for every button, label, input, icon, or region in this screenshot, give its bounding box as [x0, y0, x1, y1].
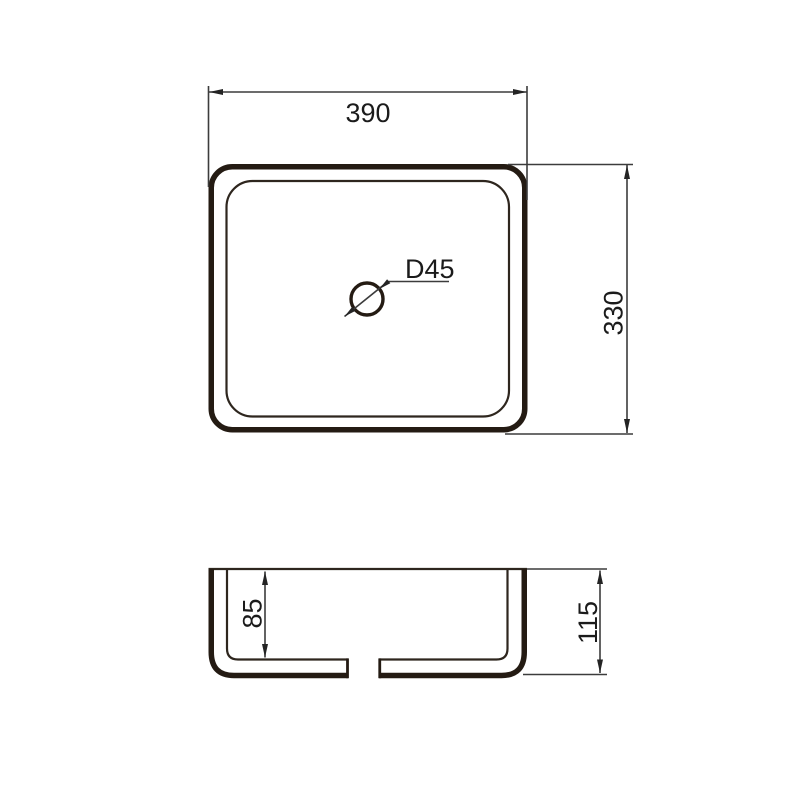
width-arrow-left-icon [209, 89, 223, 95]
inner-depth-dimension: 85 [238, 572, 269, 658]
section-inner-wall-right [379, 569, 508, 660]
drain-diameter-label: D45 [405, 254, 455, 284]
height-arrow-top-icon [597, 571, 603, 585]
inner-depth-arrow-top-icon [262, 572, 268, 586]
width-arrow-right-icon [513, 89, 527, 95]
width-dimension: 390 [209, 86, 528, 200]
depth-dimension-label: 330 [599, 290, 629, 335]
depth-arrow-top-icon [624, 165, 630, 179]
top-view: D45 [211, 167, 525, 430]
inner-depth-dimension-label: 85 [238, 598, 268, 628]
drain-leader-line [345, 282, 450, 317]
width-dimension-label: 390 [345, 98, 390, 128]
technical-drawing-canvas: D45 390 330 [0, 0, 800, 800]
height-arrow-bottom-icon [597, 660, 603, 674]
inner-depth-arrow-bottom-icon [262, 644, 268, 658]
depth-arrow-bottom-icon [624, 419, 630, 433]
basin-dimension-drawing: D45 390 330 [0, 0, 800, 800]
overall-height-dimension-label: 115 [573, 601, 603, 644]
overall-height-dimension: 115 [523, 569, 607, 675]
